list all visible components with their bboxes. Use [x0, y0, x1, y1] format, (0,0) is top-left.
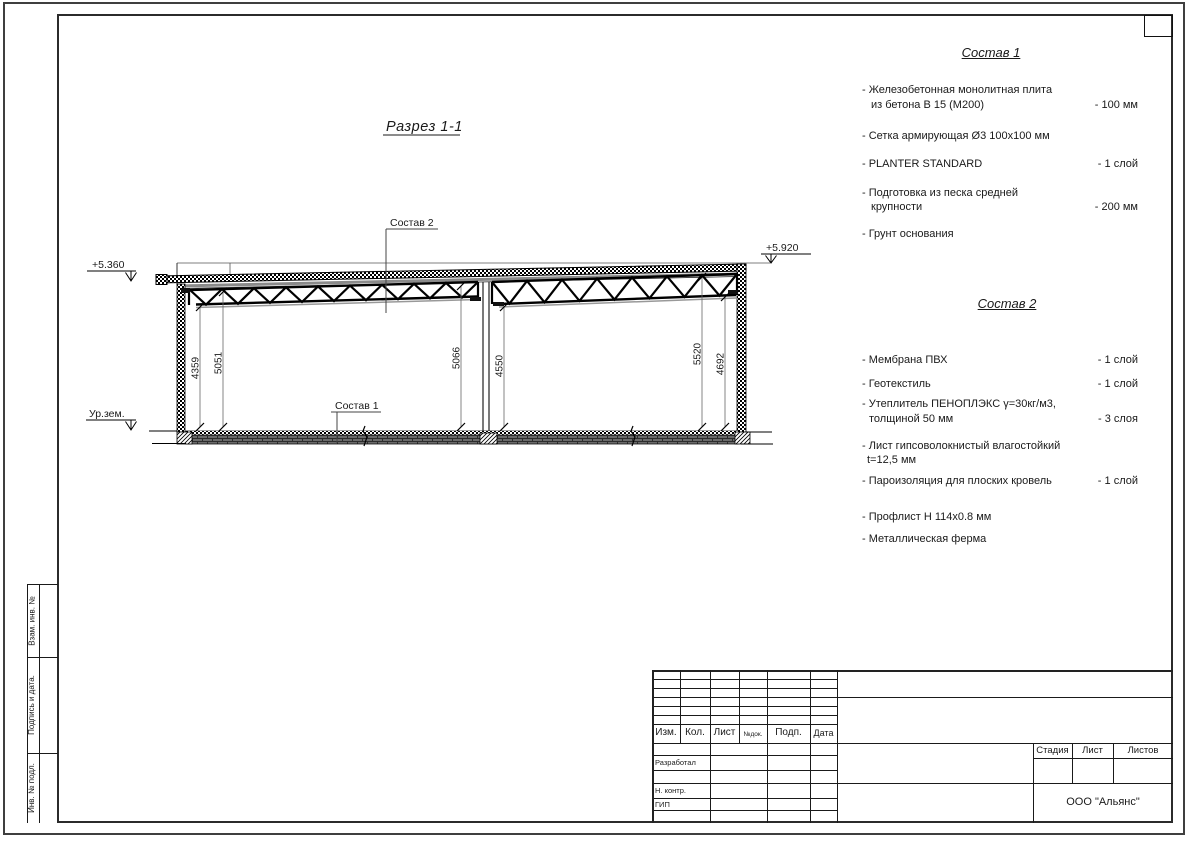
dim-4550: 4550: [495, 354, 506, 377]
list-item: - Железобетонная монолитная плита: [862, 84, 1052, 96]
corner-cell: [1144, 15, 1173, 37]
stamp-row-gip: ГИП: [655, 800, 670, 809]
floor-screed: [186, 431, 738, 435]
list-item-value: - 1 слой: [1058, 158, 1138, 170]
list-item-value: - 1 слой: [1058, 354, 1138, 366]
stamp-row-nkontr: Н. контр.: [655, 786, 686, 795]
dim-5051: 5051: [214, 351, 225, 374]
list-item: крупности: [871, 201, 922, 213]
side-cell-podpis: Подпись и дата.: [27, 657, 39, 753]
list-item-value: - 3 слоя: [1058, 413, 1138, 425]
composition-1-heading: Состав 1: [936, 45, 1046, 60]
list-item: - Грунт основания: [862, 228, 954, 240]
stamp-col-data: Дата: [810, 728, 837, 738]
list-item: - Металлическая ферма: [862, 533, 986, 545]
section-title: Разрез 1-1: [386, 119, 463, 135]
list-item: толщиной 50 мм: [869, 413, 953, 425]
list-item: - Геотекстиль: [862, 378, 931, 390]
elevation-left: +5.360: [87, 259, 137, 281]
svg-text:Ур.зем.: Ур.зем.: [89, 408, 125, 420]
company-name: ООО "Альянс": [1033, 796, 1173, 808]
list-item: - Сетка армирующая Ø3 100х100 мм: [862, 130, 1050, 142]
list-item-value: - 1 слой: [1058, 475, 1138, 487]
side-label-vzam: Взам. инв. №: [27, 584, 39, 657]
stamp-col-kol: Кол.: [680, 727, 710, 738]
dim-4692: 4692: [716, 352, 727, 375]
ground-level-mark: Ур.зем.: [86, 408, 137, 430]
list-item: - PLANTER STANDARD: [862, 158, 982, 170]
drawing-sheet: Разрез 1-1: [0, 0, 1191, 842]
stamp-row-razrabotal: Разработал: [655, 758, 696, 767]
elevation-right: +5.920: [761, 242, 811, 263]
dim-5066: 5066: [452, 346, 463, 369]
left-footing: [177, 432, 192, 444]
roof-left-end-cap: [156, 275, 167, 285]
list-item: - Утеплитель ПЕНОПЛЭКС γ=30кг/м3,: [862, 398, 1056, 410]
side-cell-inv: Инв. № подл.: [27, 753, 39, 823]
side-label-inv: Инв. № подл.: [27, 753, 39, 823]
stamp-col-ndok: №док.: [739, 731, 767, 738]
list-item: t=12,5 мм: [867, 454, 916, 466]
middle-footing: [480, 433, 497, 444]
list-item: - Подготовка из песка средней: [862, 187, 1018, 199]
svg-text:Состав 2: Состав 2: [390, 217, 434, 229]
list-item: - Мембрана ПВХ: [862, 354, 947, 366]
section-drawing: Разрез 1-1: [0, 0, 830, 470]
svg-text:+5.360: +5.360: [92, 259, 125, 271]
left-wall: [177, 284, 185, 432]
stamp-stage: Стадия: [1033, 745, 1072, 756]
stamp-sheet: Лист: [1072, 745, 1113, 756]
dim-5520: 5520: [693, 342, 704, 365]
list-item: - Пароизоляция для плоских кровель: [862, 475, 1052, 487]
stamp-col-podp: Подп.: [767, 727, 810, 738]
list-item: из бетона В 15 (М200): [871, 99, 984, 111]
right-footing: [735, 432, 750, 444]
svg-text:Состав 1: Состав 1: [335, 400, 379, 412]
right-wall: [737, 264, 746, 432]
side-label-podpis: Подпись и дата.: [27, 657, 39, 753]
dim-4359: 4359: [191, 356, 202, 379]
stamp-sheets: Листов: [1113, 745, 1173, 756]
composition-2-heading: Состав 2: [952, 296, 1062, 311]
side-cell-vzam: Взам. инв. №: [27, 584, 39, 657]
list-item: - Лист гипсоволокнистый влагостойкий: [862, 440, 1060, 452]
list-item-value: - 1 слой: [1058, 378, 1138, 390]
list-item-value: - 200 мм: [1058, 201, 1138, 213]
stamp-col-list: Лист: [710, 727, 739, 738]
svg-text:+5.920: +5.920: [766, 242, 799, 254]
list-item: - Профлист Н 114х0.8 мм: [862, 511, 991, 523]
stamp-col-izm: Изм.: [652, 727, 680, 738]
list-item-value: - 100 мм: [1058, 99, 1138, 111]
